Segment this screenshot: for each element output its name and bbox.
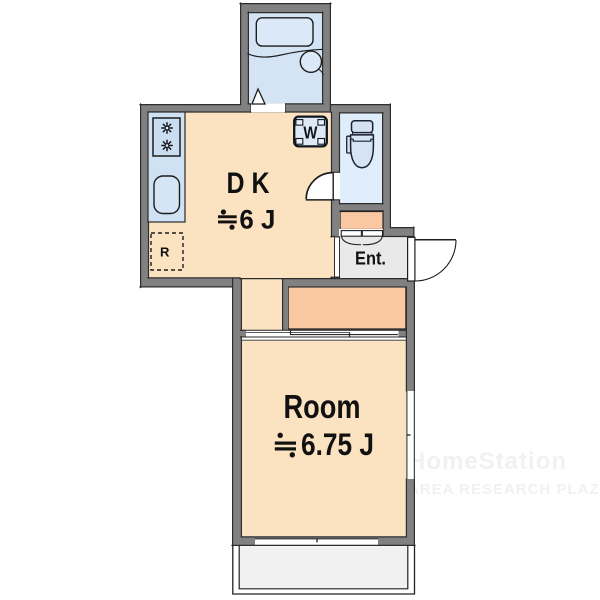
- svg-text:W: W: [303, 122, 317, 142]
- svg-text:AREA RESEARCH PLAZA: AREA RESEARCH PLAZA: [408, 481, 600, 498]
- svg-text:Room: Room: [284, 388, 361, 425]
- svg-text:6.75 J: 6.75 J: [301, 426, 374, 462]
- svg-text:Ent.: Ent.: [355, 248, 386, 269]
- svg-text:D K: D K: [227, 167, 270, 200]
- svg-text:6 J: 6 J: [239, 204, 275, 234]
- svg-text:R: R: [160, 245, 170, 260]
- svg-text:HomeStation: HomeStation: [408, 448, 567, 475]
